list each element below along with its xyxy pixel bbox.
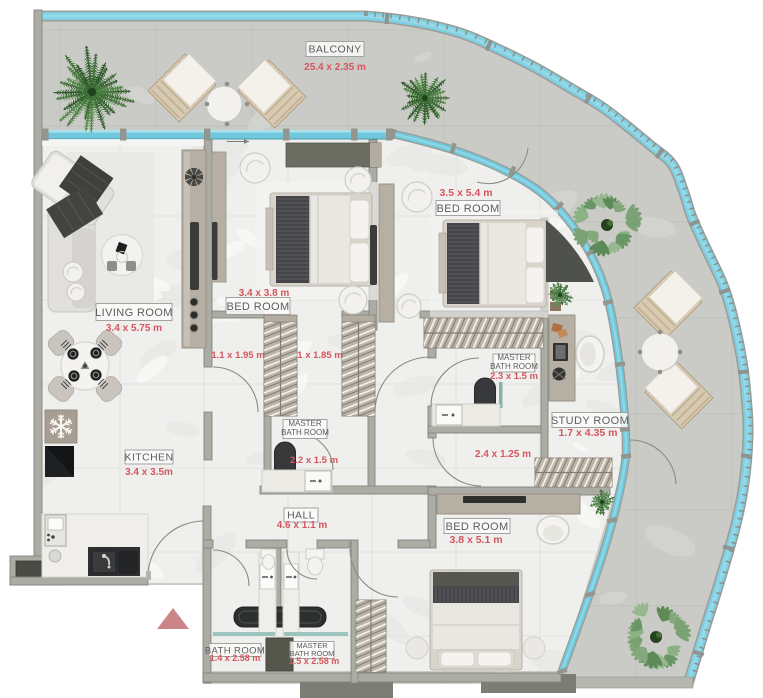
svg-text:2.3 x 1.5 m: 2.3 x 1.5 m xyxy=(490,371,538,382)
svg-text:1.1 x 1.95 m: 1.1 x 1.95 m xyxy=(211,350,264,361)
svg-text:BED ROOM: BED ROOM xyxy=(436,203,499,215)
svg-text:25.4 x 2.35 m: 25.4 x 2.35 m xyxy=(304,62,366,73)
svg-text:1 x 1.85 m: 1 x 1.85 m xyxy=(297,350,342,361)
svg-text:3.4 x 3.5m: 3.4 x 3.5m xyxy=(125,467,173,478)
svg-text:BALCONY: BALCONY xyxy=(309,44,362,56)
svg-text:MASTER: MASTER xyxy=(288,419,322,428)
svg-text:LIVING ROOM: LIVING ROOM xyxy=(95,307,173,319)
svg-text:BATH ROOM: BATH ROOM xyxy=(490,362,538,371)
svg-text:BATH ROOM: BATH ROOM xyxy=(281,428,329,437)
svg-text:3.4 x 5.75 m: 3.4 x 5.75 m xyxy=(106,323,162,334)
svg-text:1.5 x 2.58 m: 1.5 x 2.58 m xyxy=(289,656,340,666)
svg-text:1.7 x 4.35 m: 1.7 x 4.35 m xyxy=(559,427,618,439)
svg-text:3.8 x 5.1 m: 3.8 x 5.1 m xyxy=(449,534,502,546)
svg-text:STUDY ROOM: STUDY ROOM xyxy=(551,415,629,427)
svg-text:4.6 x 1.1 m: 4.6 x 1.1 m xyxy=(277,520,328,531)
svg-text:1.4 x 2.58 m: 1.4 x 2.58 m xyxy=(210,653,261,663)
svg-text:MASTER: MASTER xyxy=(497,353,531,362)
svg-text:2.4 x 1.25 m: 2.4 x 1.25 m xyxy=(475,449,531,460)
svg-text:2.2 x 1.5 m: 2.2 x 1.5 m xyxy=(290,455,338,466)
svg-text:3.5 x 5.4 m: 3.5 x 5.4 m xyxy=(439,187,492,199)
svg-text:KITCHEN: KITCHEN xyxy=(125,452,174,464)
svg-text:BED ROOM: BED ROOM xyxy=(445,521,508,533)
svg-text:BED ROOM: BED ROOM xyxy=(226,301,289,313)
